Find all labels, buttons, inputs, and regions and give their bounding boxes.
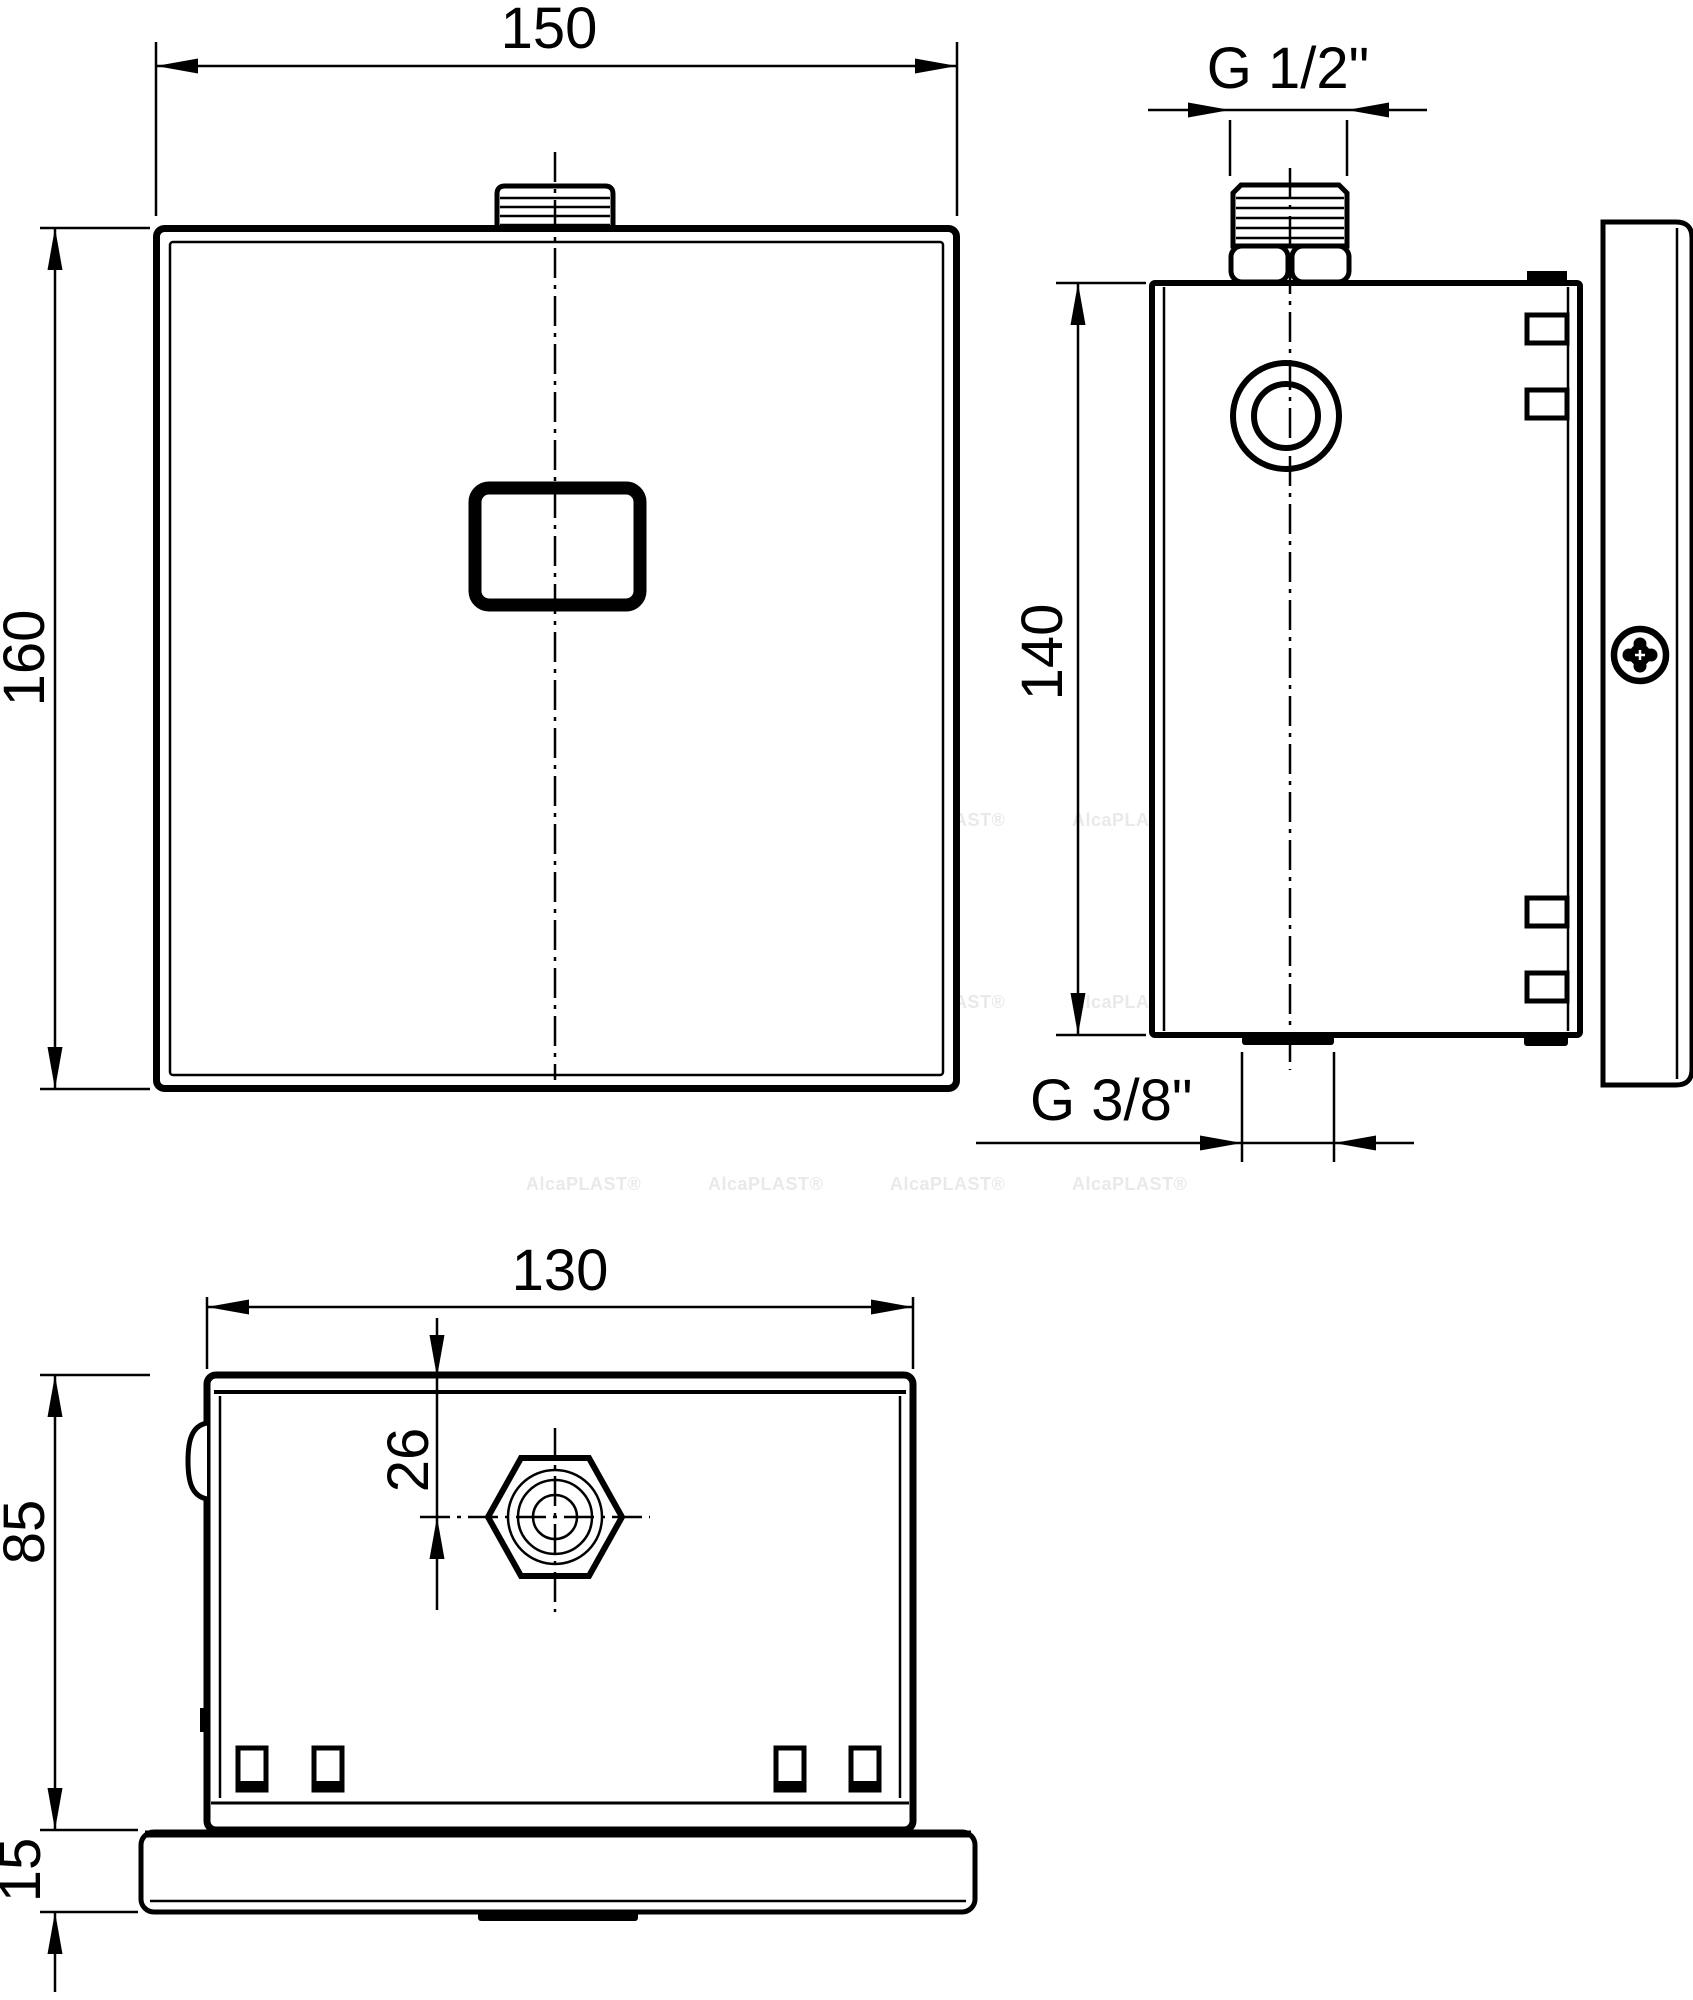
hex-nut-face-left [1231, 246, 1288, 282]
bottom-clip-foot [316, 1781, 340, 1790]
dimension-140-label: 140 [1010, 604, 1075, 701]
sensor-window [475, 488, 640, 605]
screw-lobe [1645, 649, 1658, 662]
dimension-150-label: 150 [501, 0, 598, 61]
plate-screw [1614, 629, 1666, 681]
hex-nut-face-right [1292, 246, 1349, 282]
drawing-svg: AlcaPLAST® AlcaPLAST® AlcaPLAST® AlcaPLA… [0, 0, 1693, 2000]
bottom-flange-tab [478, 1911, 638, 1921]
dimension-g38-label: G 3/8" [1030, 1068, 1192, 1133]
dimension-26-label: 26 [376, 1428, 441, 1493]
side-clip [1527, 390, 1567, 418]
watermark: AlcaPLAST® [1072, 1174, 1187, 1194]
side-clip [1527, 898, 1567, 926]
side-clip [1527, 973, 1567, 1001]
front-panel-outline [157, 229, 957, 1089]
dimension-g12-label: G 1/2" [1207, 36, 1369, 101]
watermark: AlcaPLAST® [890, 1174, 1005, 1194]
side-body-outline [1152, 283, 1580, 1035]
bottom-clip-foot [240, 1781, 264, 1790]
technical-drawing-page: AlcaPLAST® AlcaPLAST® AlcaPLAST® AlcaPLA… [0, 0, 1693, 2000]
dimension-130-label: 130 [512, 1238, 609, 1303]
side-port-inner-circle [1254, 384, 1318, 448]
watermark: AlcaPLAST® [708, 1174, 823, 1194]
dimension-160-label: 160 [0, 610, 57, 707]
bottom-left-bump [188, 1423, 207, 1499]
dimension-15-label: 15 [0, 1838, 53, 1903]
bottom-clip-foot [778, 1781, 802, 1790]
screw-lobe [1634, 638, 1647, 651]
bottom-clip-foot [853, 1781, 877, 1790]
bottom-left-tab [200, 1708, 209, 1732]
screw-lobe [1634, 660, 1647, 673]
dimension-85-label: 85 [0, 1500, 57, 1565]
screw-lobe [1623, 649, 1636, 662]
side-top-tab [1527, 271, 1567, 283]
watermark: AlcaPLAST® [526, 1174, 641, 1194]
side-clip [1527, 315, 1567, 343]
side-bottom-thread-stub [1242, 1035, 1334, 1045]
side-bottom-tab [1524, 1035, 1568, 1046]
